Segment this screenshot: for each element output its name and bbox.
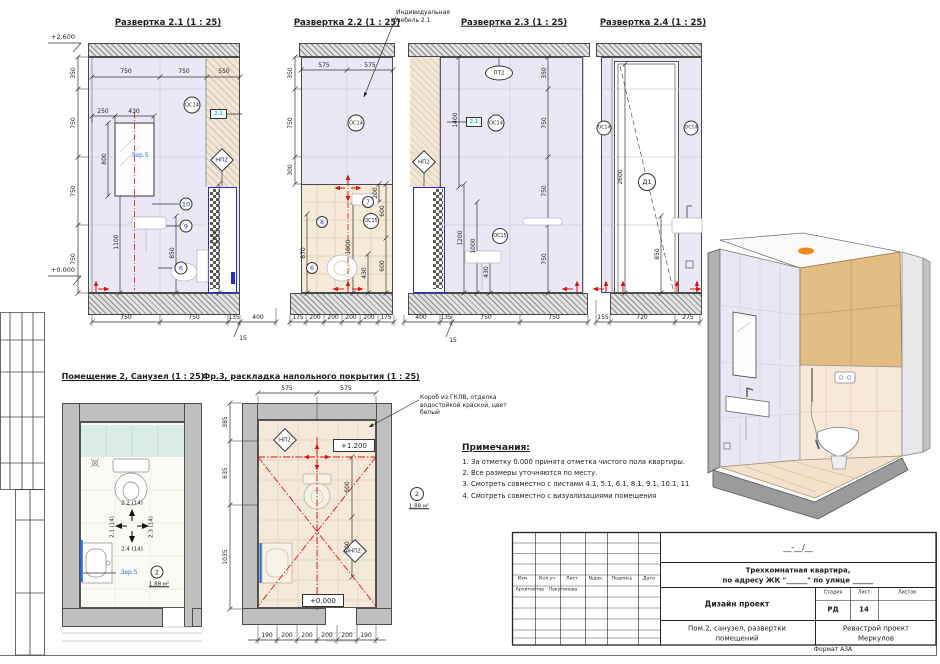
elevation-2-4-title: Развертка 2.4 (1 : 25) (600, 19, 706, 28)
level-value: +0.000 (310, 597, 336, 605)
dim-label: 750 (120, 315, 131, 321)
dim-label: 750 (71, 185, 77, 196)
finish-tag-os14: ОС14 (488, 115, 505, 132)
dim-label: 750 (542, 185, 548, 196)
dim-label: 600 (345, 541, 351, 552)
dim-label: 350 (288, 67, 294, 78)
project-name: Трехкомнатная квартира, (746, 568, 851, 575)
sheet-number: 14 (859, 607, 869, 614)
stage-label: Стадия (824, 592, 842, 597)
dim-label: 200 (301, 633, 312, 639)
doc-type: Дизайн проект (705, 600, 770, 608)
callout-label: 9 (184, 222, 188, 230)
dim-label: 850 (655, 248, 661, 259)
tag-label: НП2 (418, 159, 430, 165)
col-header: Подпись (612, 578, 633, 583)
dim-label: 1400 (453, 112, 459, 127)
dim-label: 430 (362, 267, 368, 278)
company-name: Меркулов (858, 636, 894, 643)
dim-label: 200 (363, 315, 374, 321)
dim-label: 1000 (471, 238, 477, 253)
tag-label: Д1 (642, 178, 651, 186)
room-area: 1.88 м² (409, 504, 429, 510)
level-box-low: +0.000 (302, 594, 344, 607)
dim-label: 575 (340, 386, 351, 392)
plan-direction-cross (115, 509, 149, 543)
dim-label: 1035 (223, 549, 229, 564)
tag-label: ОС14 (185, 102, 199, 108)
sheets-label: Листов (898, 592, 916, 597)
dim-label: 575 (364, 63, 375, 69)
notes-list: За отметку 0.000 принята отметка чистого… (458, 458, 699, 503)
elevation-2-4-lines (594, 57, 703, 326)
dim-label: 575 (318, 63, 329, 69)
dim-label: 300 (288, 164, 294, 175)
elevation-2-1-title: Развертка 2.1 (1 : 25) (115, 19, 221, 28)
callout-label: 10 (182, 200, 190, 208)
dim-label: 1200 (458, 230, 464, 245)
dim-label: 750 (288, 117, 294, 128)
tag-label: ОС14 (489, 120, 503, 126)
col-header: Дата (643, 578, 655, 583)
direction-label-right: 2.3 (14) (149, 516, 155, 538)
dim-label: 1100 (114, 234, 120, 249)
finish-tag-os15: ОС15 (492, 228, 508, 244)
callout-8: 8 (316, 216, 328, 228)
dim-label: 750 (178, 69, 189, 75)
dim-label: 600 (380, 205, 386, 216)
tag-label: ОС14 (685, 126, 698, 131)
fragment-tag-2-1: 2.1 (210, 109, 227, 119)
dim-label: 750 (71, 253, 77, 264)
dim-label: 600 (380, 260, 386, 271)
dim-label: 385 (223, 416, 229, 427)
elevation-2-4-red-arrows (593, 281, 702, 293)
room-area: 1.88 м² (149, 582, 169, 588)
dim-label: 750 (188, 315, 199, 321)
tag-label: ОС15 (364, 219, 377, 224)
dim-label: 750 (71, 117, 77, 128)
dim-label: 200 (327, 315, 338, 321)
tag-label: ОС14 (598, 126, 611, 131)
dim-label: 200 (373, 187, 379, 198)
sheet-subject: помещений (715, 636, 758, 643)
tag-label: НП2 (279, 437, 291, 443)
company-name: Ревастрой проект (843, 626, 909, 633)
sheet-subject: Пом.2, санузел, развертки (688, 626, 786, 633)
callout-label: 7 (366, 199, 370, 206)
note-flag: 15 (239, 336, 247, 342)
dim-label: 135 (440, 315, 451, 321)
dim-label: 275 (682, 315, 693, 321)
col-header: Изм. (518, 578, 529, 583)
dim-label: 2600 (618, 169, 624, 184)
dim-label: 250 (97, 109, 108, 115)
dim-label: 350 (71, 67, 77, 78)
stage-value: РД (827, 607, 838, 614)
frag-title: Фр.3, раскладка напольного покрытия (1 :… (202, 373, 419, 381)
doc-code: __-__/__ (783, 544, 813, 552)
room-number: 2 (415, 490, 419, 498)
finish-tag-os14: ОС14 (597, 121, 612, 136)
finish-tag-os15: ОС15 (363, 213, 379, 229)
dim-label: 1000 (346, 239, 352, 254)
note-item: Смотреть совместно с визуализациями поме… (471, 492, 699, 501)
finish-tag-os14: ОС14 (184, 97, 201, 114)
dim-label: 1200 (213, 229, 219, 244)
role-label: Архитектор (516, 589, 544, 594)
dim-label: 850 (170, 247, 176, 258)
mirror-label: Зер.5 (120, 570, 137, 576)
dim-label: 200 (341, 633, 352, 639)
dim-label: 200 (309, 315, 320, 321)
dim-label: 190 (261, 633, 272, 639)
dim-label: 750 (548, 315, 559, 321)
dim-label: 400 (252, 315, 263, 321)
elevation-2-1-lines (48, 43, 279, 337)
door-tag-d1: Д1 (638, 173, 656, 191)
dim-label: 550 (218, 69, 229, 75)
tag-label: ОС15 (493, 234, 506, 239)
project-address: по адресу ЖК "______" по улице ______ (723, 578, 874, 585)
dim-label: 200 (321, 633, 332, 639)
dim-label: 600 (345, 481, 351, 492)
elevation-2-3-title: Развертка 2.3 (1 : 25) (461, 19, 567, 28)
dim-label: 430 (484, 266, 490, 277)
col-header: Лист (566, 578, 578, 583)
dim-label: 750 (120, 69, 131, 75)
elevation-2-2-lines (288, 17, 397, 326)
dim-label: 750 (542, 117, 548, 128)
direction-label-top: 2.2 (14) (121, 501, 143, 507)
level-mark: +2.600 (51, 34, 75, 41)
callout-6: 6 (175, 262, 188, 275)
elevation-2-3-lines (402, 55, 591, 338)
level-box-high: +1.200 (333, 439, 375, 452)
direction-label-bottom: 2.4 (14) (121, 547, 143, 553)
dim-label: 200 (281, 633, 292, 639)
level-mark: +0.000 (51, 267, 75, 274)
col-header: №док. (589, 578, 604, 583)
dim-label: 800 (102, 153, 108, 164)
elevation-2-1-red-arrows (94, 281, 110, 293)
notes-title: Примечания: (462, 443, 530, 454)
elevation-2-3-red-arrows (562, 281, 580, 293)
dim-label: 175 (292, 315, 303, 321)
callout-label: 6 (310, 265, 314, 272)
dim-label: 750 (542, 253, 548, 264)
ceiling-tag-pt2: ПТ2 (485, 66, 513, 81)
mirror-label: Зер.5 (131, 153, 148, 159)
tag-label: ОС14 (349, 120, 363, 126)
note-item: Все размеры уточняются по месту. (471, 469, 699, 478)
tag-label: 2.1 (214, 111, 223, 117)
architect-name: Лакутинова (549, 589, 578, 594)
dim-label: 175 (380, 315, 391, 321)
dim-label: 190 (360, 633, 371, 639)
tag-label: 2.1 (470, 119, 479, 125)
finish-tag-os14: ОС14 (684, 121, 699, 136)
dim-label: 575 (281, 386, 292, 392)
room-badge: 2 (151, 566, 164, 579)
room-badge: 2 (410, 487, 424, 501)
dim-label: 720 (636, 315, 647, 321)
view-3d (708, 233, 930, 519)
dim-label: 400 (415, 315, 426, 321)
korob-annotation: Короб из ГКЛВ, отделка водостойкой краск… (420, 394, 508, 417)
dim-label: 155 (597, 315, 608, 321)
dim-label: 430 (128, 109, 139, 115)
direction-label-left: 2.1 (14) (110, 516, 116, 538)
tag-label: ПТ2 (494, 70, 505, 76)
note-item: За отметку 0.000 принята отметка чистого… (471, 458, 699, 467)
dim-label: 350 (542, 67, 548, 78)
room-number: 2 (155, 568, 159, 576)
tag-label: НП2 (216, 157, 228, 163)
col-header: Кол.уч (539, 578, 555, 583)
callout-10: 10 (180, 198, 193, 211)
format-note: Формат А3А (814, 647, 852, 653)
callout-label: 6 (179, 264, 183, 272)
furniture-annotation: Индивидуальная мебель 2.1 (396, 9, 456, 24)
dim-label: 200 (345, 315, 356, 321)
dim-label: 135 (228, 315, 239, 321)
callout-9: 9 (180, 220, 193, 233)
linework (0, 0, 940, 664)
sheet-label: Лист (858, 592, 870, 597)
elevation-2-2-title: Развертка 2.2 (1 : 25) (294, 19, 400, 28)
finish-tag-os14: ОС14 (348, 115, 365, 132)
callout-6: 6 (306, 262, 318, 274)
level-value: +1.200 (341, 442, 367, 450)
fragment-tag-2-1: 2.1 (466, 117, 482, 127)
dim-label: 750 (480, 315, 491, 321)
plan-title: Помещение 2, Санузел (1 : 25) (62, 373, 205, 381)
dim-label: 635 (223, 467, 229, 478)
note-item: Смотреть совместно с листами 4.1, 5.1, 6… (471, 480, 699, 489)
dim-label: 870 (301, 247, 307, 258)
drawing-sheet: ОС14 10 9 6 2.1 НП2 ОС14 ОС15 7 8 6 ПТ2 … (0, 0, 940, 664)
callout-label: 8 (320, 219, 324, 226)
note-flag: 15 (449, 338, 457, 344)
